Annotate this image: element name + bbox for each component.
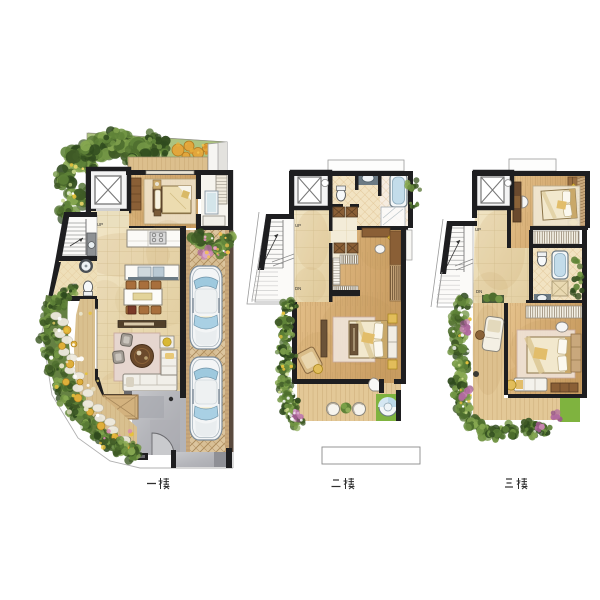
svg-text:DN: DN	[476, 289, 482, 294]
svg-text:DN: DN	[295, 286, 301, 291]
svg-text:UP: UP	[295, 223, 301, 228]
svg-text:UP: UP	[475, 227, 481, 232]
svg-text:UP: UP	[97, 222, 103, 227]
